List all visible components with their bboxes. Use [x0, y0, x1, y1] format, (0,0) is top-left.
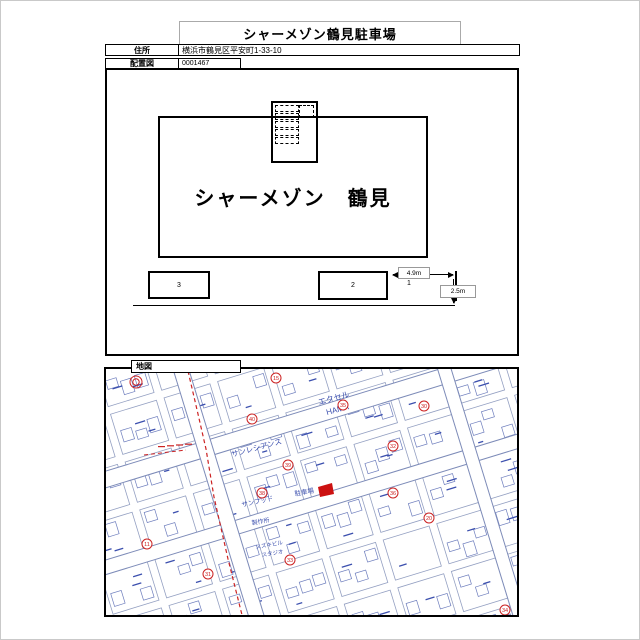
map-frame: エクセルHAMAサンレシアンス駐車場サンフッド製作所スズキビルスタジオ40153…	[104, 367, 519, 617]
map-number-label: 33	[287, 558, 293, 564]
road-name-mark	[158, 446, 165, 447]
building-name: シャーメゾン 鶴見	[194, 182, 391, 211]
arrow-down-icon	[451, 298, 457, 304]
address-value-cell: 横浜市鶴見区平安町1-33-10	[178, 44, 520, 56]
map-number-label: 38	[259, 491, 265, 497]
depth-dimension-label: 2.5m	[440, 285, 476, 298]
site-plan-code: 0001467	[182, 60, 209, 67]
map-number-label: 32	[390, 444, 396, 450]
city-block	[344, 590, 402, 615]
road-name-mark	[185, 444, 192, 445]
map-number-label: 11	[144, 542, 150, 548]
city-block	[383, 526, 441, 580]
map-number-label: 34	[502, 608, 508, 614]
building-outline: シャーメゾン 鶴見	[158, 116, 428, 258]
map-number-label: 31	[205, 572, 211, 578]
parking-space-1: 1	[407, 280, 411, 287]
city-map: エクセルHAMAサンレシアンス駐車場サンフッド製作所スズキビルスタジオ40153…	[106, 369, 517, 615]
document-title: シャーメゾン鶴見駐車場	[243, 24, 396, 43]
width-dimension-label: 4.9m	[398, 267, 430, 279]
arrow-right-icon	[448, 272, 454, 278]
dim-width-text: 4.9m	[407, 270, 421, 277]
site-plan-diagram: シャーメゾン 鶴見 3 2 1 4.9m 2.5m	[105, 68, 519, 356]
city-block	[330, 542, 388, 596]
parking-space-3: 3	[148, 271, 210, 299]
dim-depth-text: 2.5m	[451, 288, 465, 295]
city-block	[169, 591, 227, 615]
map-section-label-box: 地図	[131, 360, 241, 373]
city-block	[276, 559, 334, 613]
document-page: シャーメゾン鶴見駐車場 住所 横浜市鶴見区平安町1-33-10 配置図 0001…	[0, 0, 640, 640]
stair-step	[275, 105, 299, 112]
map-number-label: 36	[390, 491, 396, 497]
map-number-label: 15	[273, 376, 279, 382]
parking-space-2: 2	[318, 271, 388, 300]
space-number: 1	[407, 280, 411, 287]
space-number: 3	[177, 282, 181, 289]
road-line	[133, 305, 455, 306]
map-number-label: 20	[426, 516, 432, 522]
road-name-mark	[167, 445, 174, 446]
map-number-label: 39	[285, 463, 291, 469]
city-block	[218, 369, 276, 422]
map-section-label: 地図	[136, 361, 152, 372]
space-number: 2	[351, 282, 355, 289]
map-number-label: 30	[421, 404, 427, 410]
address-label-cell: 住所	[105, 44, 179, 56]
address-label: 住所	[134, 45, 150, 56]
map-number-label: 35	[340, 403, 346, 409]
document-title-box: シャーメゾン鶴見駐車場	[179, 21, 461, 45]
map-number-label: 40	[249, 417, 255, 423]
address-value: 横浜市鶴見区平安町1-33-10	[182, 45, 282, 56]
road-name-mark	[176, 444, 183, 445]
